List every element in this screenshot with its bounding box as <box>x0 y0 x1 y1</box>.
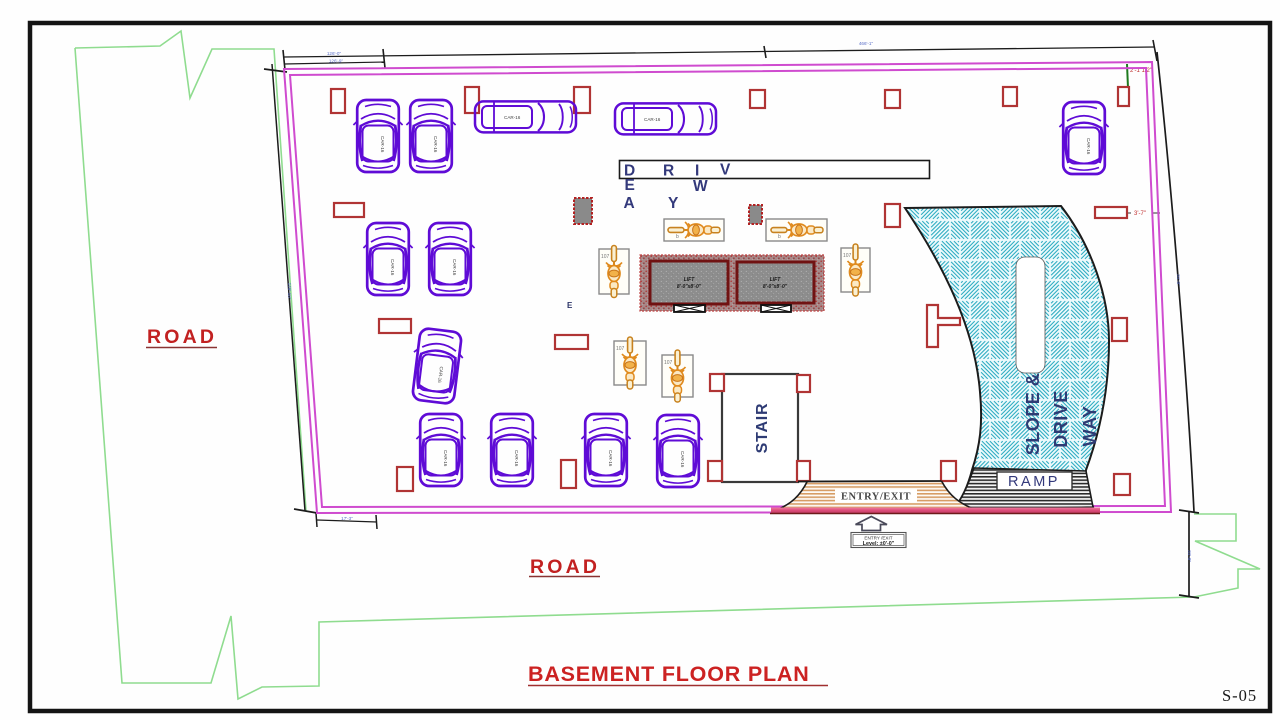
svg-text:107: 107 <box>616 346 625 352</box>
svg-text:BASEMENT FLOOR PLAN: BASEMENT FLOOR PLAN <box>528 662 810 686</box>
svg-text:I: I <box>695 163 699 180</box>
svg-text:RAMP: RAMP <box>1008 474 1060 490</box>
svg-text:126'-9": 126'-9" <box>329 59 344 64</box>
svg-text:W: W <box>693 178 708 195</box>
svg-text:ROAD: ROAD <box>147 326 217 348</box>
svg-text:107: 107 <box>843 253 852 259</box>
svg-text:LIFT: LIFT <box>770 277 781 283</box>
svg-text:E: E <box>625 177 635 194</box>
svg-text:126'-0": 126'-0" <box>327 51 342 56</box>
svg-text:17'-3": 17'-3" <box>341 516 353 521</box>
svg-text:466'-1": 466'-1" <box>859 41 874 46</box>
svg-text:146'-10": 146'-10" <box>287 283 292 300</box>
svg-text:ENTRY /EXIT: ENTRY /EXIT <box>864 536 892 541</box>
svg-text:Y: Y <box>668 195 679 212</box>
svg-text:DRIVE: DRIVE <box>1051 390 1071 448</box>
svg-text:Level: ±0'-0": Level: ±0'-0" <box>863 541 895 547</box>
svg-text:b: b <box>676 234 679 240</box>
svg-text:8'-0"x8'-0": 8'-0"x8'-0" <box>677 284 702 290</box>
svg-text:V: V <box>720 162 731 179</box>
svg-text:WAY: WAY <box>1080 406 1100 447</box>
svg-text:A: A <box>624 195 635 212</box>
svg-text:3'-7": 3'-7" <box>1134 211 1146 217</box>
svg-text:107: 107 <box>664 360 673 366</box>
svg-text:31'-0": 31'-0" <box>1187 550 1192 562</box>
svg-text:ROAD: ROAD <box>530 556 600 578</box>
svg-text:STAIR: STAIR <box>754 403 771 454</box>
svg-text:LIFT: LIFT <box>684 277 695 283</box>
svg-text:E: E <box>567 301 573 310</box>
svg-text:8'-0"x8'-0": 8'-0"x8'-0" <box>763 284 788 290</box>
svg-text:b: b <box>778 234 781 240</box>
svg-text:ENTRY/EXIT: ENTRY/EXIT <box>841 492 911 503</box>
svg-text:R: R <box>663 163 674 180</box>
svg-text:31'-0": 31'-0" <box>1176 274 1181 286</box>
svg-text:SLOPE &: SLOPE & <box>1023 373 1043 456</box>
svg-text:S-05: S-05 <box>1222 686 1257 705</box>
svg-text:107: 107 <box>601 254 610 260</box>
